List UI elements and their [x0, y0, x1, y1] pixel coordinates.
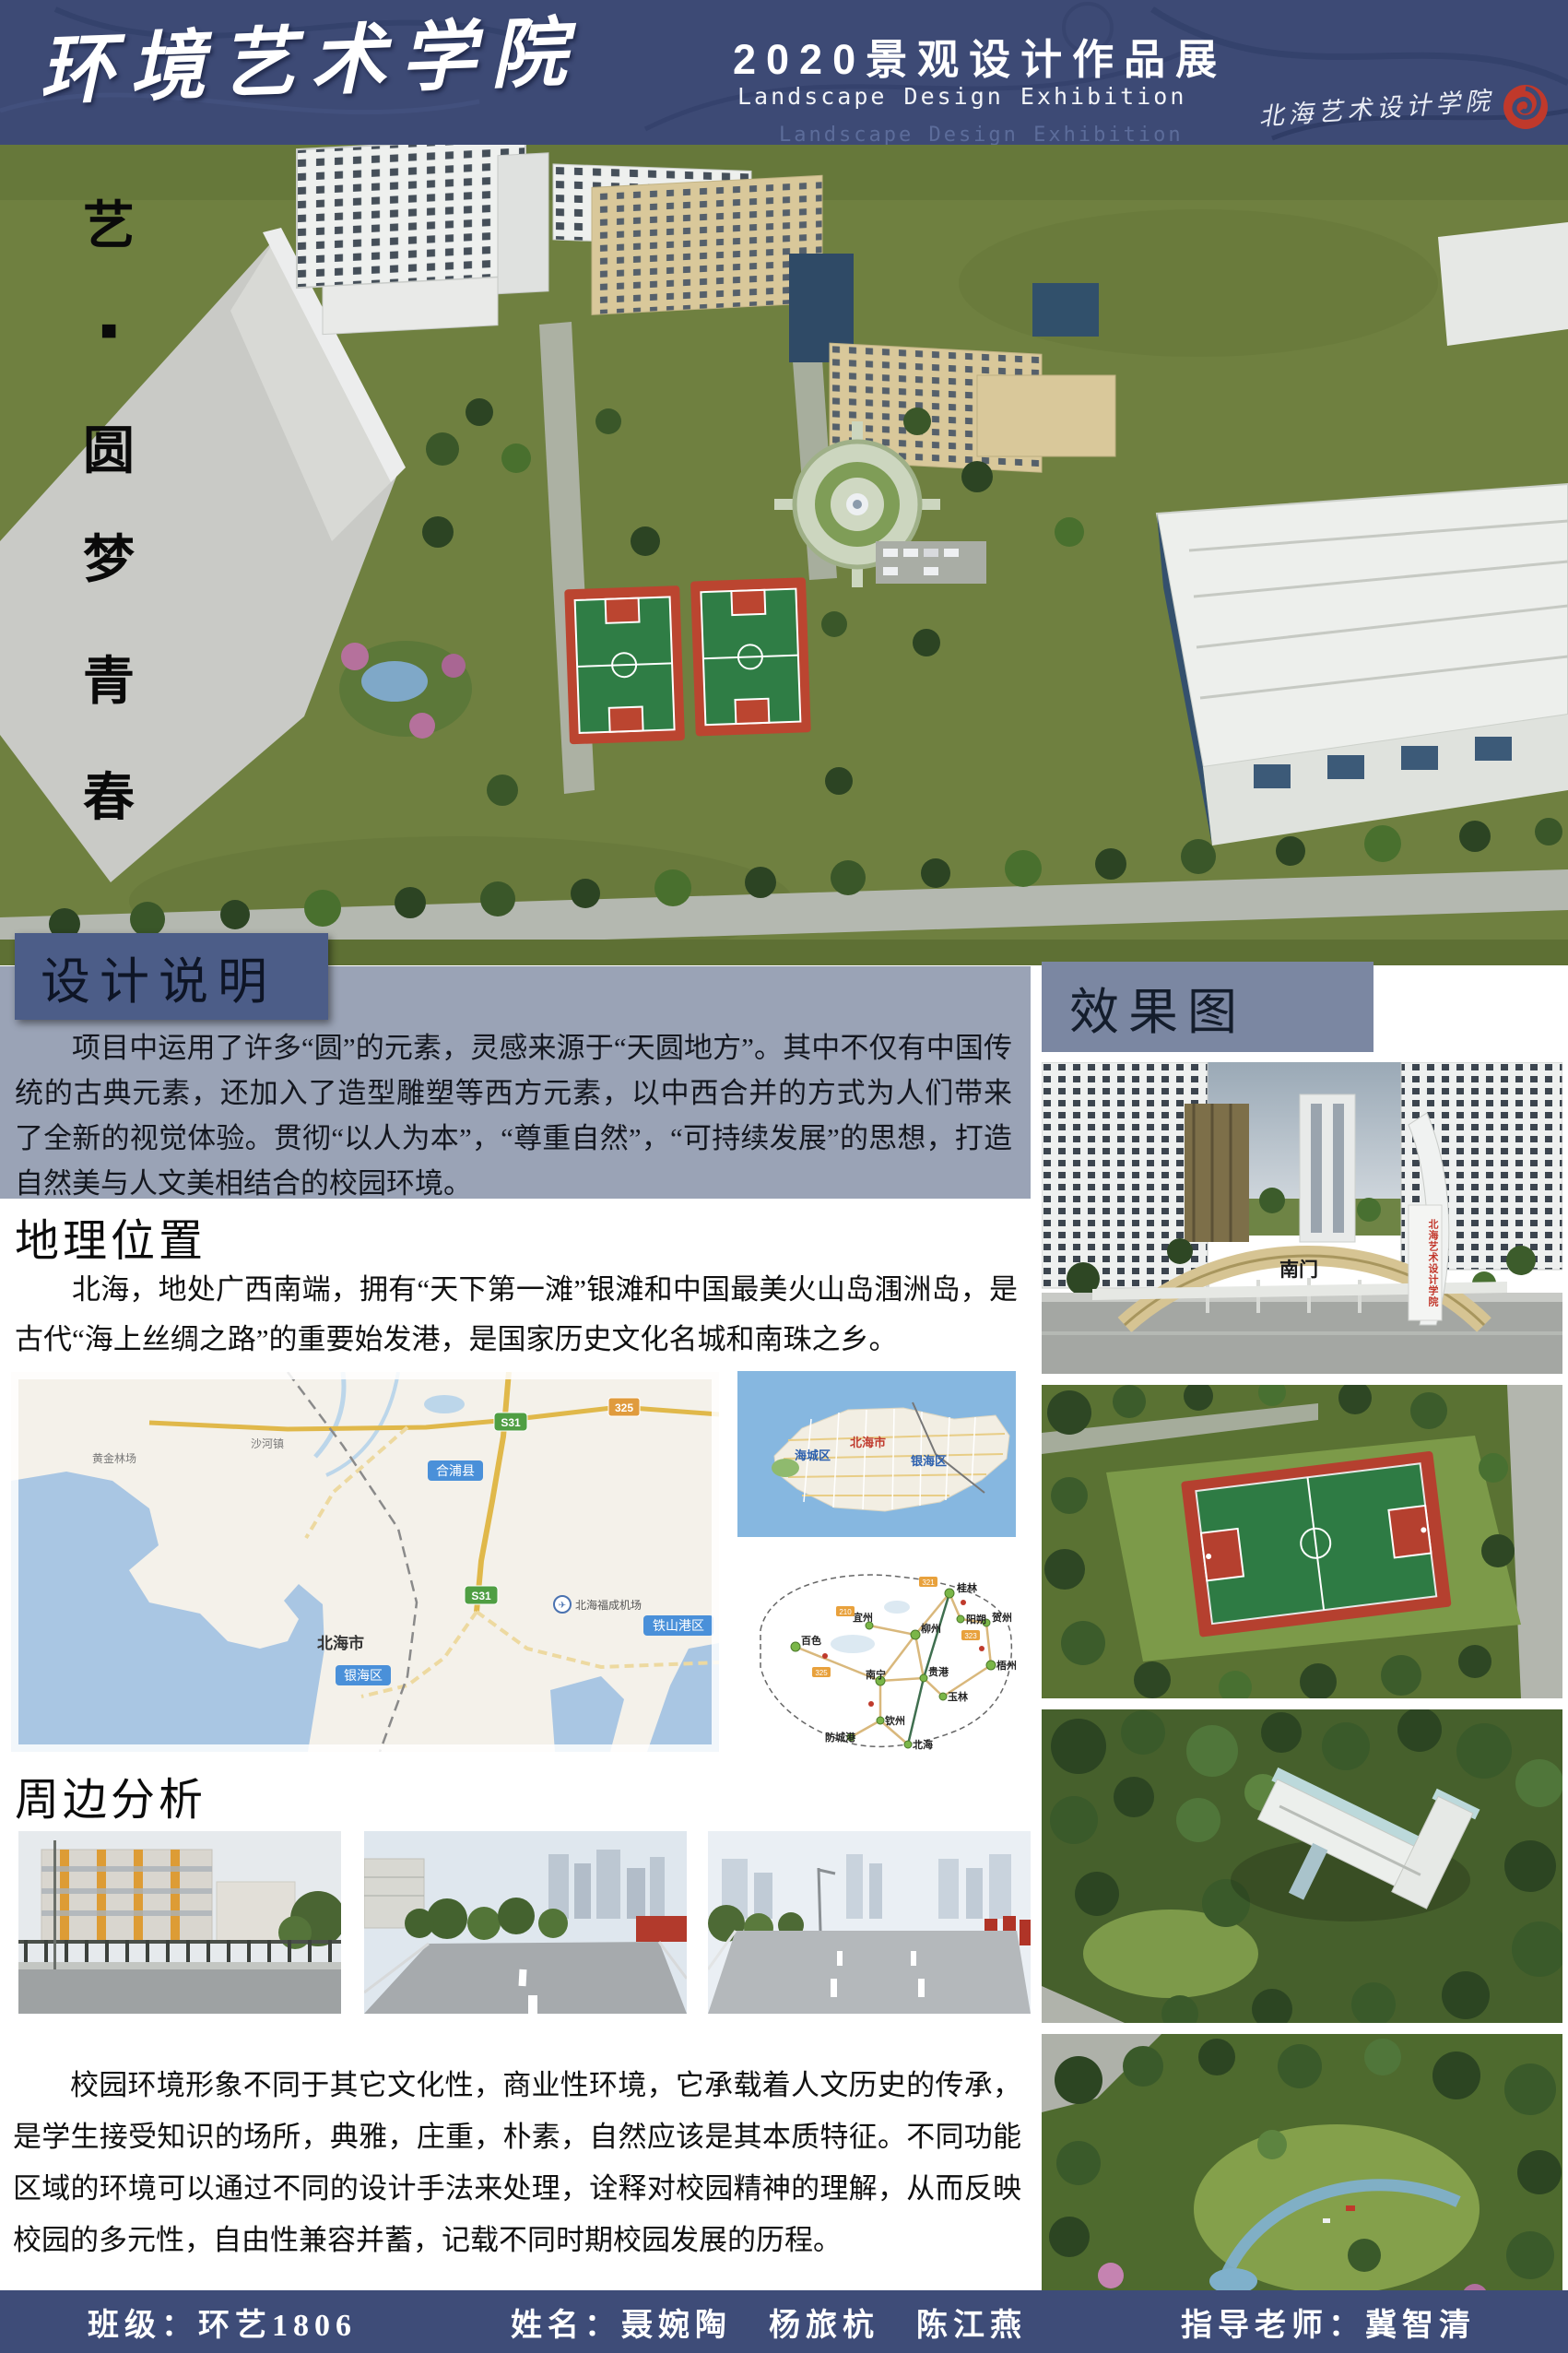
- header-banner: 环境艺术学院 2020景观设计作品展 Landscape Design Exhi…: [0, 0, 1568, 145]
- map-label-farm: 黄金林场: [92, 1451, 136, 1465]
- rendering-south-gate: 南门 北海艺术设计学院: [1042, 1062, 1562, 1374]
- renderings-title: 效果图: [1069, 971, 1246, 1044]
- guangxi-province-map: 桂林 阳朔 柳州 贺州 梧州 宜州 百色 南宁 贵港 玉林 钦州 防城港 北海 …: [733, 1556, 1019, 1754]
- road-shield-s31-2: S31: [465, 1586, 498, 1604]
- svg-text:南宁: 南宁: [866, 1668, 886, 1681]
- gate-tower-text: 北海艺术设计学院: [1412, 1212, 1440, 1315]
- svg-text:贵港: 贵港: [928, 1665, 949, 1678]
- beihai-city-street-map: 海城区 北海市 银海区: [737, 1371, 1016, 1537]
- vertical-theme-title: 艺 ■ 圆 梦 青 春: [72, 184, 146, 848]
- map-label-beihai: 北海市: [317, 1634, 364, 1652]
- vertical-title-char: 艺: [72, 184, 146, 259]
- map-label-hepu: 合浦县: [428, 1460, 483, 1481]
- surroundings-photo-street: [364, 1831, 687, 2014]
- gate-sign-label: 南门: [1279, 1259, 1318, 1281]
- svg-text:S31: S31: [501, 1416, 521, 1429]
- road-shield-325: 325: [608, 1398, 640, 1416]
- svg-text:阳朔: 阳朔: [966, 1613, 986, 1626]
- gymnasium-building: [1157, 484, 1568, 845]
- city-label-haicheng: 海城区: [795, 1448, 831, 1462]
- svg-text:银海区: 银海区: [344, 1668, 383, 1683]
- exhibition-subtitle: Landscape Design Exhibition: [737, 83, 1186, 110]
- beihai-region-map: S31 S31 325 合浦县 银海区 铁山港区 北海市: [11, 1372, 719, 1752]
- exhibition-title: 2020景观设计作品展: [733, 26, 1227, 86]
- campus-aerial-render: 艺 ■ 圆 梦 青 春: [0, 145, 1568, 965]
- svg-text:✈: ✈: [559, 1601, 566, 1611]
- rendering-basketball-court: [1042, 1385, 1562, 1698]
- surroundings-section-title: 周边分析: [15, 1763, 206, 1827]
- school-calligraphy-title: 环境艺术学院: [37, 0, 583, 119]
- renderings-title-box: 效果图: [1042, 962, 1373, 1052]
- svg-text:S31: S31: [471, 1590, 491, 1602]
- design-note-title-box: 设计说明: [15, 933, 328, 1020]
- footer-class: 班级：环艺1806: [88, 2300, 357, 2345]
- vertical-title-separator: ■: [72, 315, 146, 347]
- svg-text:钦州: 钦州: [885, 1714, 905, 1727]
- svg-text:柳州: 柳州: [921, 1622, 941, 1635]
- vertical-title-char: 梦: [72, 518, 146, 593]
- svg-text:桂林: 桂林: [956, 1581, 977, 1594]
- location-section-title: 地理位置: [15, 1204, 206, 1269]
- footer-credits-bar: 班级：环艺1806 姓名：聂婉陶 杨旅杭 陈江燕 指导老师：冀智清: [0, 2290, 1568, 2353]
- svg-text:合浦县: 合浦县: [436, 1463, 475, 1478]
- surroundings-photo-road: [708, 1831, 1031, 2014]
- footer-names: 姓名：聂婉陶 杨旅杭 陈江燕: [511, 2300, 1027, 2345]
- exhibition-poster: 环境艺术学院 2020景观设计作品展 Landscape Design Exhi…: [0, 0, 1568, 2353]
- red-spiral-logo-icon: [1500, 81, 1551, 133]
- design-note-title: 设计说明: [41, 940, 277, 1013]
- svg-text:323: 323: [964, 1632, 977, 1640]
- svg-text:宜州: 宜州: [853, 1611, 873, 1624]
- exhibition-subtitle-ghost: Landscape Design Exhibition: [779, 124, 1184, 145]
- location-body: 北海，地处广西南端，拥有“天下第一滩”银滩和中国最美火山岛涠洲岛，是古代“海上丝…: [15, 1265, 1018, 1365]
- svg-text:百色: 百色: [801, 1634, 821, 1647]
- map-label-town: 沙河镇: [251, 1437, 284, 1450]
- vertical-title-char: 青: [72, 640, 146, 715]
- svg-text:321: 321: [922, 1579, 935, 1587]
- svg-text:玉林: 玉林: [948, 1690, 968, 1703]
- svg-text:210: 210: [839, 1608, 852, 1616]
- road-shield-s31: S31: [494, 1413, 527, 1431]
- svg-text:325: 325: [615, 1401, 633, 1414]
- svg-text:防城港: 防城港: [825, 1731, 856, 1744]
- footer-advisor: 指导老师：冀智清: [1181, 2300, 1476, 2345]
- vertical-title-char: 春: [72, 756, 146, 831]
- svg-text:梧州: 梧州: [996, 1659, 1017, 1672]
- surroundings-photo-school: [18, 1831, 341, 2014]
- svg-text:325: 325: [815, 1669, 828, 1677]
- airport-icon: ✈: [554, 1596, 571, 1613]
- svg-text:北海: 北海: [913, 1738, 933, 1751]
- city-label-yinhai: 银海区: [911, 1454, 947, 1468]
- rendering-forest-building: [1042, 1709, 1562, 2023]
- svg-text:铁山港区: 铁山港区: [653, 1618, 704, 1633]
- court-markings: [1181, 1451, 1452, 1638]
- conclusion-body: 校园环境形象不同于其它文化性，商业性环境，它承载着人文历史的传承，是学生接受知识…: [13, 2060, 1021, 2266]
- map-label-yinhai: 银海区: [336, 1665, 391, 1685]
- parking-lot: [876, 541, 986, 584]
- map-label-tieshangang: 铁山港区: [643, 1615, 713, 1636]
- svg-text:贺州: 贺州: [991, 1611, 1012, 1624]
- map-label-airport: 北海福成机场: [575, 1598, 642, 1612]
- city-label-beihai: 北海市: [850, 1436, 886, 1449]
- design-note-body: 项目中运用了许多“圆”的元素，灵感来源于“天圆地方”。其中不仅有中国传统的古典元…: [15, 1025, 1012, 1206]
- vertical-title-char: 圆: [72, 409, 146, 484]
